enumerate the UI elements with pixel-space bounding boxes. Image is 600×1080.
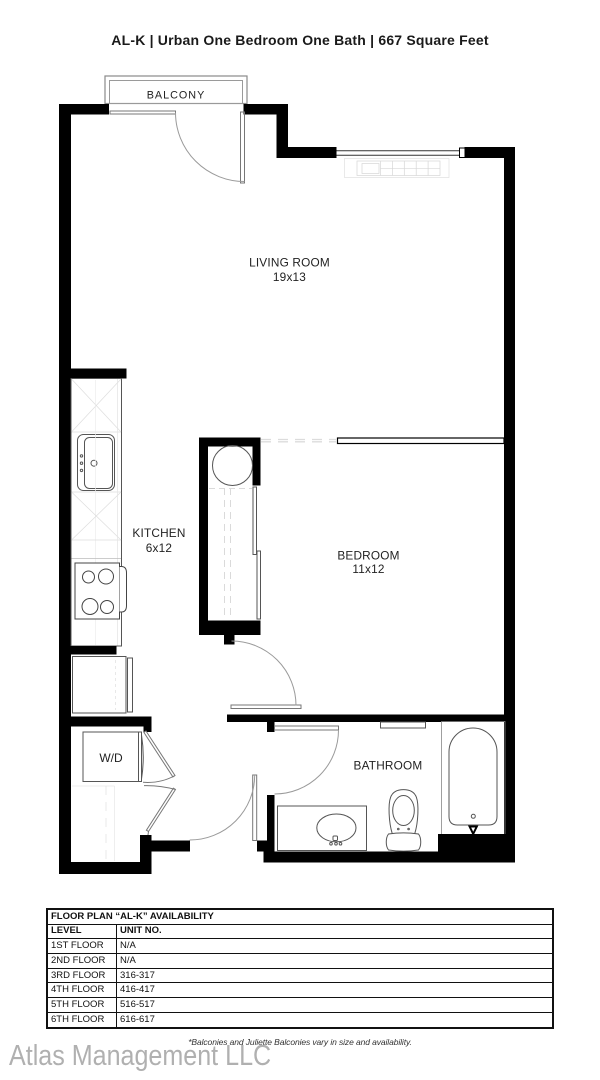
svg-text:KITCHEN: KITCHEN: [132, 526, 185, 540]
svg-text:BATHROOM: BATHROOM: [354, 759, 423, 773]
svg-text:19x13: 19x13: [273, 270, 306, 284]
svg-text:BALCONY: BALCONY: [147, 90, 206, 102]
svg-text:LIVING ROOM: LIVING ROOM: [249, 256, 330, 270]
svg-text:6x12: 6x12: [146, 541, 172, 555]
svg-text:BEDROOM: BEDROOM: [337, 549, 399, 563]
svg-text:W/D: W/D: [99, 751, 123, 765]
svg-text:11x12: 11x12: [352, 562, 384, 576]
